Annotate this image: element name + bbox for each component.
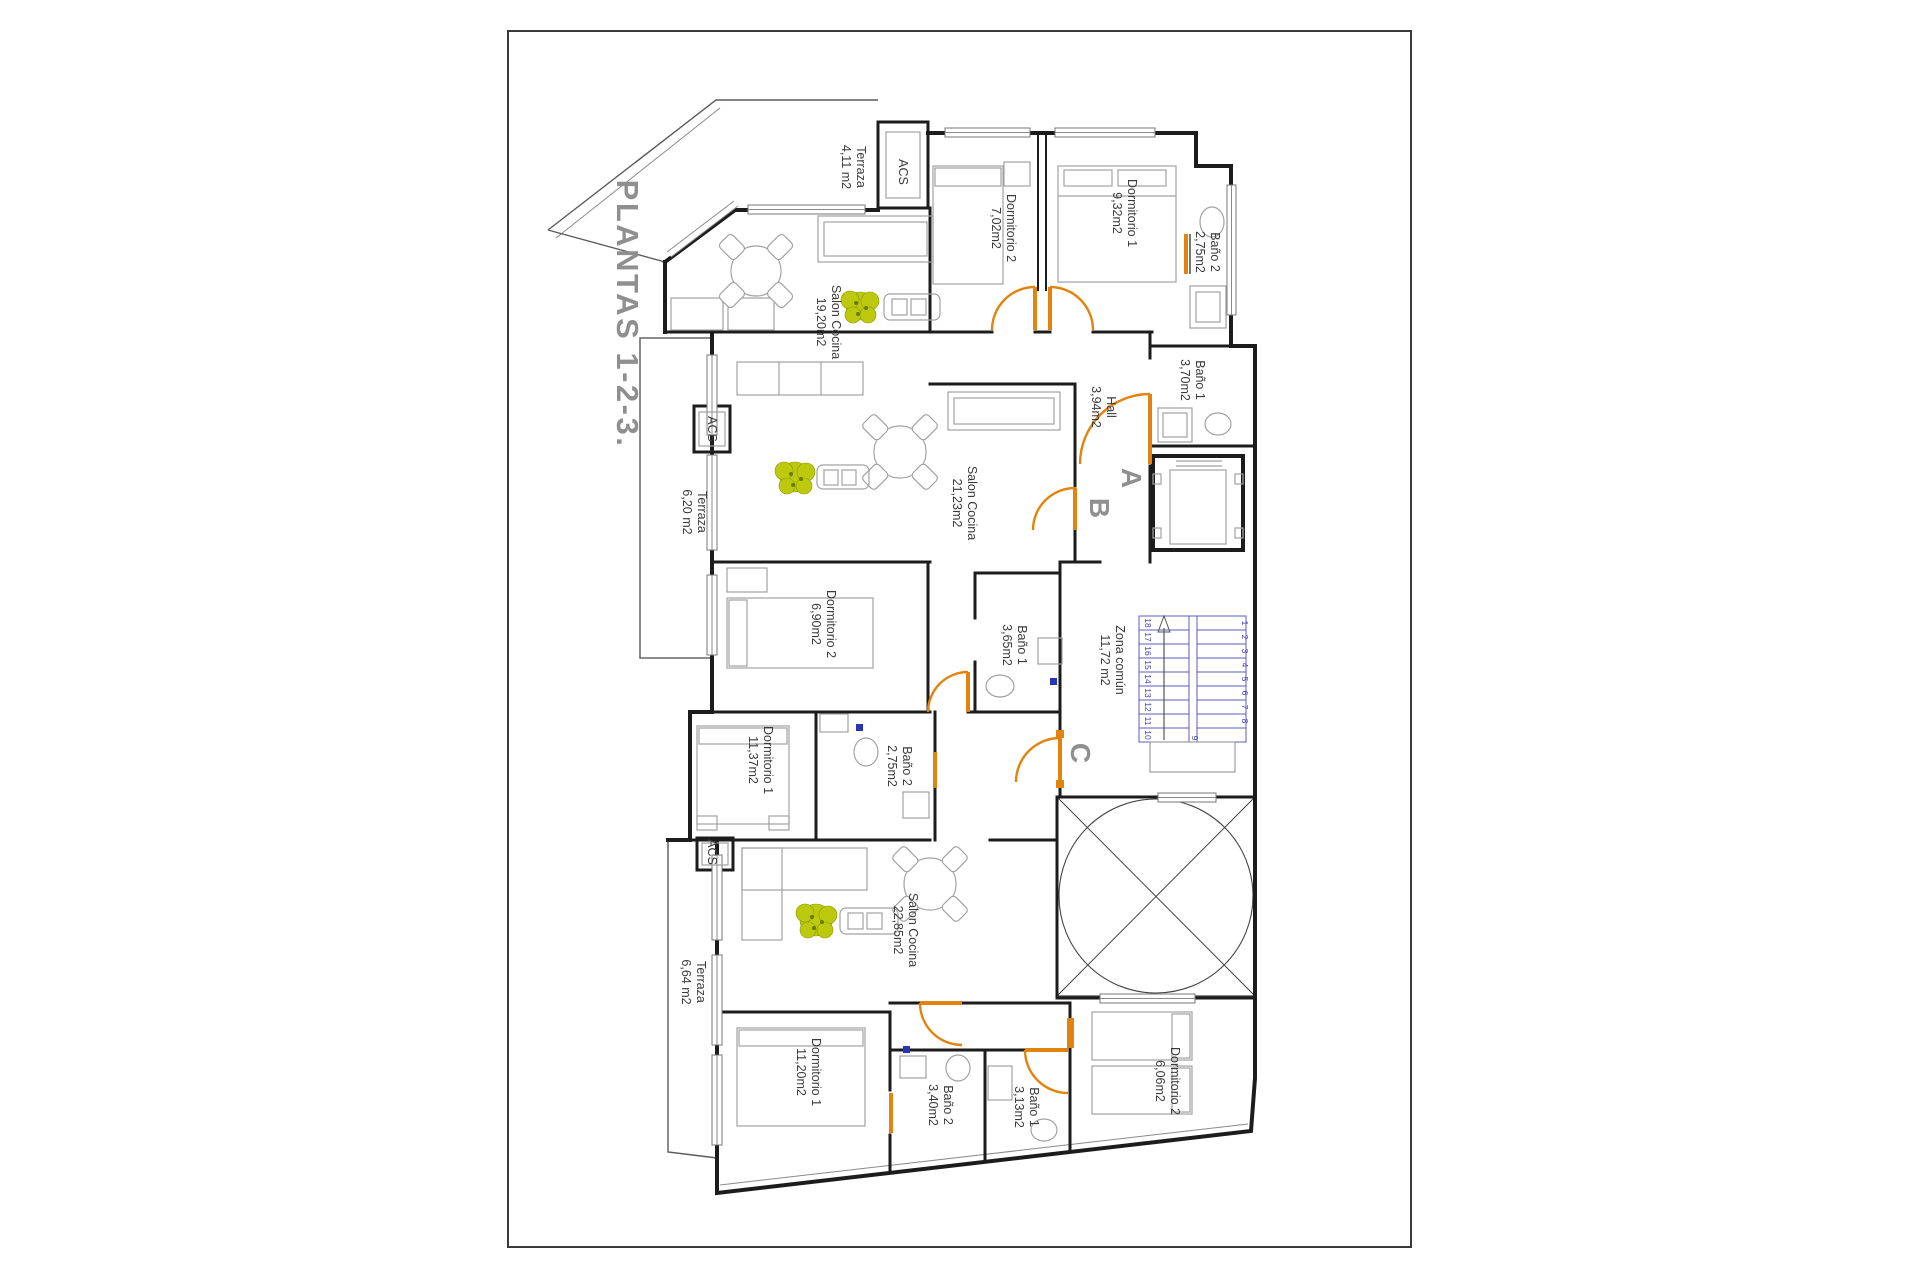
svg-text:5: 5	[1240, 677, 1250, 682]
room-label-bano1-365: Baño 13,65m2	[1000, 624, 1029, 666]
room-label-terraza-620: Terraza6,20 m2	[680, 489, 709, 534]
page-title: PLANTAS 1-2-3.	[610, 180, 645, 449]
core-letter-c: C	[1065, 743, 1096, 763]
svg-text:6: 6	[1240, 691, 1250, 696]
svg-text:13: 13	[1143, 688, 1153, 698]
core-letter-b: B	[1084, 498, 1115, 518]
room-label-bano1-313: Baño 13,13m2	[1012, 1086, 1041, 1128]
svg-text:9: 9	[1190, 736, 1200, 741]
svg-text:8: 8	[1240, 719, 1250, 724]
svg-text:2: 2	[1240, 635, 1250, 640]
room-label-acs-mid: ACS	[705, 416, 719, 442]
room-label-acs-bottom: ACS	[705, 839, 719, 865]
room-label-bano2-275c: Baño 22,75m2	[885, 745, 914, 787]
plant-icon-2	[775, 462, 815, 494]
room-label-zona-comun: Zona común11,72 m2	[1098, 625, 1127, 695]
svg-text:14: 14	[1143, 674, 1153, 684]
floor-plan-drawing: 18 17 16 15 14 13 12 11 10 1 2 3 4 5 6 7…	[0, 0, 1920, 1280]
svg-text:1: 1	[1240, 621, 1250, 626]
svg-text:11: 11	[1143, 717, 1153, 726]
svg-text:4: 4	[1240, 663, 1250, 668]
room-label-bano2-275a: Baño 22,75m2	[1193, 231, 1222, 273]
room-label-bano2-340: Baño 23,40m2	[926, 1084, 955, 1126]
svg-text:7: 7	[1240, 705, 1250, 710]
svg-text:3: 3	[1240, 649, 1250, 654]
svg-text:18: 18	[1143, 618, 1153, 628]
room-label-terraza-664: Terraza6,64 m2	[679, 959, 708, 1004]
core-letter-a: A	[1116, 468, 1147, 488]
floor-plan-page: 18 17 16 15 14 13 12 11 10 1 2 3 4 5 6 7…	[0, 0, 1920, 1280]
plant-icon-1	[841, 291, 879, 323]
svg-text:16: 16	[1143, 646, 1153, 656]
svg-text:15: 15	[1143, 660, 1153, 670]
svg-text:10: 10	[1143, 730, 1153, 740]
room-label-acs-top: ACS	[896, 159, 910, 185]
room-label-terraza-top: Terraza4,11 m2	[839, 145, 868, 189]
plant-icon-3	[796, 904, 837, 938]
room-label-bano1-370: Baño 13,70m2	[1178, 359, 1207, 401]
svg-text:12: 12	[1143, 702, 1153, 712]
svg-text:17: 17	[1143, 632, 1153, 642]
